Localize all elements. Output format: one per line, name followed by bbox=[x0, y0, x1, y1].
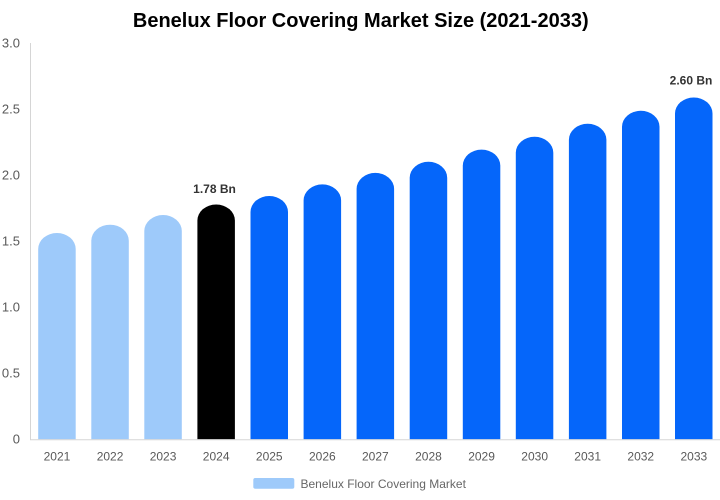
svg-text:1.0: 1.0 bbox=[2, 300, 20, 315]
svg-text:1.5: 1.5 bbox=[2, 234, 20, 249]
svg-text:Benelux Floor Covering Market: Benelux Floor Covering Market bbox=[301, 477, 467, 491]
svg-text:1.78 Bn: 1.78 Bn bbox=[193, 182, 236, 196]
svg-text:2023: 2023 bbox=[150, 450, 177, 464]
svg-text:2022: 2022 bbox=[97, 450, 124, 464]
svg-text:Benelux Floor Covering Market: Benelux Floor Covering Market Size (2021… bbox=[133, 10, 589, 32]
svg-text:3.0: 3.0 bbox=[2, 36, 20, 51]
svg-text:2033: 2033 bbox=[680, 450, 707, 464]
svg-text:2029: 2029 bbox=[468, 450, 495, 464]
svg-text:2028: 2028 bbox=[415, 450, 442, 464]
svg-text:2032: 2032 bbox=[627, 450, 654, 464]
svg-text:0.5: 0.5 bbox=[2, 366, 20, 381]
svg-text:2024: 2024 bbox=[203, 450, 230, 464]
svg-text:2026: 2026 bbox=[309, 450, 336, 464]
svg-text:2.0: 2.0 bbox=[2, 168, 20, 183]
svg-text:2021: 2021 bbox=[44, 450, 71, 464]
svg-text:0: 0 bbox=[13, 432, 20, 447]
svg-text:2025: 2025 bbox=[256, 450, 283, 464]
svg-text:2.5: 2.5 bbox=[2, 102, 20, 117]
svg-text:2027: 2027 bbox=[362, 450, 389, 464]
svg-text:2030: 2030 bbox=[521, 450, 548, 464]
svg-text:2031: 2031 bbox=[574, 450, 601, 464]
svg-text:2.60 Bn: 2.60 Bn bbox=[670, 74, 713, 88]
